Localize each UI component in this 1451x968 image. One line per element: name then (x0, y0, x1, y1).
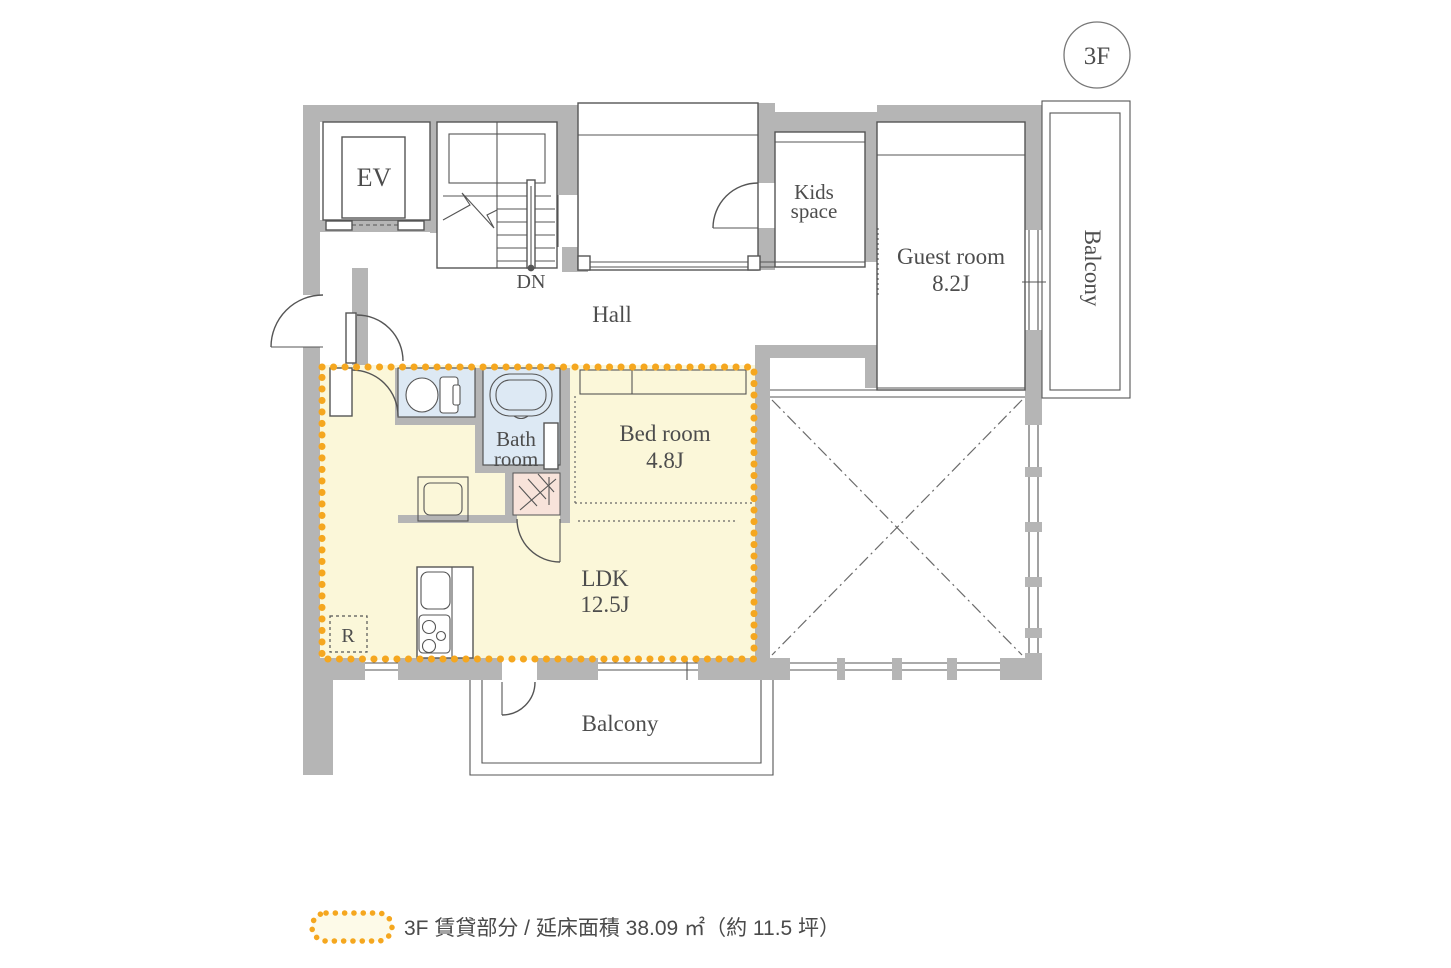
legend-label: 3F 賃貸部分 / 延床面積 38.09 ㎡（約 11.5 坪） (404, 916, 840, 940)
floor-badge-label: 3F (1084, 43, 1110, 70)
kids-space-label-2: space (791, 199, 838, 223)
floor-plan-page: EV DN Hall Kids space Guest room 8.2J Ba… (0, 0, 1451, 968)
void-x-lines (772, 400, 1022, 655)
exterior-door-arc (271, 295, 323, 347)
balcony-bottom-label: Balcony (582, 711, 659, 736)
guest-room-size: 8.2J (932, 271, 970, 296)
kitchen-counter (417, 567, 473, 658)
dn-label: DN (517, 271, 546, 293)
ldk-label: LDK (581, 566, 629, 591)
void-right-windows (1029, 425, 1038, 653)
hall-entry-door (346, 313, 356, 363)
floor-badge: 3F (1064, 22, 1130, 88)
guest-room-label: Guest room (897, 244, 1005, 269)
bath-door (544, 423, 558, 469)
balcony-right-label: Balcony (1080, 230, 1105, 307)
bath-room-label-2: room (494, 447, 538, 471)
refrigerator-label: R (341, 625, 355, 647)
toilet-icon (406, 377, 460, 413)
legend: 3F 賃貸部分 / 延床面積 38.09 ㎡（約 11.5 坪） (312, 913, 840, 941)
ladder-space (513, 473, 560, 515)
legend-rental-swatch (312, 913, 392, 941)
hall-label: Hall (592, 302, 632, 327)
balcony-door-arc (502, 682, 535, 715)
unit-entry-door (330, 368, 352, 416)
floor-plan-canvas: EV DN Hall Kids space Guest room 8.2J Ba… (0, 0, 1451, 968)
top-center-room (578, 103, 758, 270)
ev-label: EV (357, 163, 392, 192)
ldk-size: 12.5J (580, 592, 629, 617)
bed-room-size: 4.8J (646, 448, 684, 473)
bed-room-label: Bed room (619, 421, 710, 446)
